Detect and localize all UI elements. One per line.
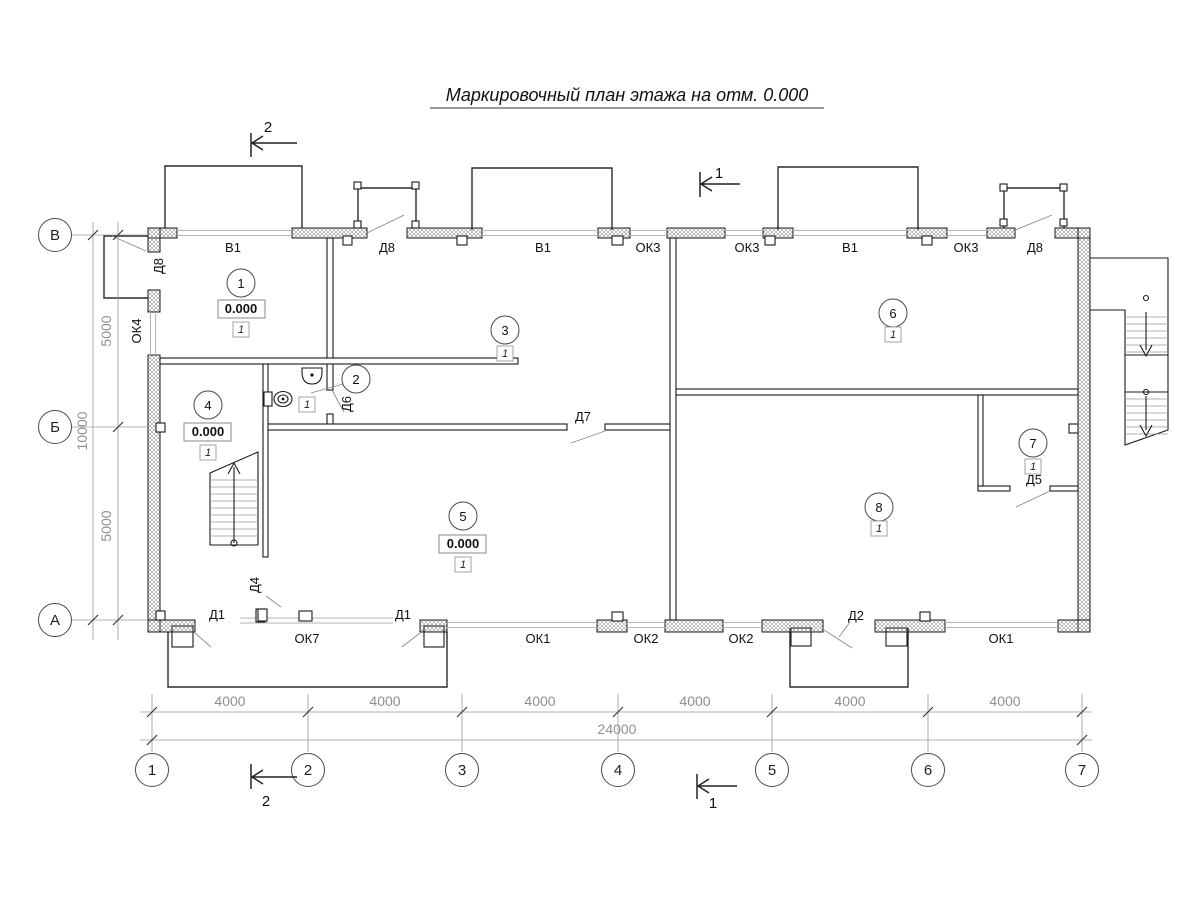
room-3-finish: 1 xyxy=(502,348,508,360)
mark-ok1-2: ОК1 xyxy=(989,631,1014,646)
room-8-number: 8 xyxy=(875,500,882,515)
west-porch xyxy=(104,236,148,298)
dimensions-and-grid: 4000 4000 4000 4000 4000 4000 24000 5000… xyxy=(39,219,1099,787)
dim-4000-6: 4000 xyxy=(989,693,1020,709)
room-6-label: 6 1 xyxy=(879,299,907,342)
mark-ok2-1: ОК2 xyxy=(634,631,659,646)
north-porch-2 xyxy=(472,168,612,230)
section-2-label-bottom: 2 xyxy=(262,793,270,810)
section-mark-2-bottom: 2 xyxy=(251,764,297,810)
axis-circle-2: 2 xyxy=(304,762,312,779)
door-d7-swing xyxy=(571,431,605,443)
room-5-number: 5 xyxy=(459,509,466,524)
dim-4000-1: 4000 xyxy=(214,693,245,709)
room-5-label: 5 0.000 1 xyxy=(439,502,486,572)
room-5-elevation: 0.000 xyxy=(447,536,480,551)
room-7-label: 7 1 xyxy=(1019,429,1047,474)
window-ok2-2 xyxy=(723,623,762,628)
mark-ok4: ОК4 xyxy=(129,319,144,344)
north-porch-d8-left xyxy=(354,182,419,228)
dim-4000-5: 4000 xyxy=(834,693,865,709)
room-6-finish: 1 xyxy=(890,329,896,341)
opening-v1-2 xyxy=(482,231,598,236)
section-mark-1-top: 1 xyxy=(700,165,740,197)
room-8-label: 8 1 xyxy=(865,493,893,536)
toilet xyxy=(264,392,292,407)
dim-5000-top: 5000 xyxy=(98,315,114,346)
external-stair xyxy=(1090,258,1168,445)
section-1-label-bottom: 1 xyxy=(709,795,717,812)
north-porch-3 xyxy=(778,167,918,230)
axis-circle-7: 7 xyxy=(1078,762,1086,779)
opening-v1-1 xyxy=(177,231,292,236)
room-4-label: 4 0.000 1 xyxy=(184,391,231,460)
mark-ok3-2: ОК3 xyxy=(735,240,760,255)
room-1-finish: 1 xyxy=(238,324,244,336)
dim-4000-4: 4000 xyxy=(679,693,710,709)
room-3-label: 3 1 xyxy=(491,316,519,361)
sink xyxy=(302,368,322,384)
axis-circle-v: В xyxy=(50,227,60,244)
axis-circle-3: 3 xyxy=(458,762,466,779)
section-mark-1-bottom: 1 xyxy=(697,774,737,812)
door-d1-right-swing xyxy=(402,633,420,647)
mark-d8-top2: Д8 xyxy=(1027,240,1043,255)
dim-10000: 10000 xyxy=(74,411,90,450)
mark-v1-2: В1 xyxy=(535,240,551,255)
door-d8-top1-swing xyxy=(367,215,404,233)
mark-d4: Д4 xyxy=(247,577,262,593)
north-porch-d8-right xyxy=(1000,184,1067,228)
drawing-title: Маркировочный план этажа на отм. 0.000 xyxy=(446,85,809,105)
stair-down-arrow xyxy=(1140,312,1152,356)
room-6-number: 6 xyxy=(889,306,896,321)
mark-ok2-2: ОК2 xyxy=(729,631,754,646)
mark-d6: Д6 xyxy=(339,396,354,412)
room-4-finish: 1 xyxy=(205,447,211,459)
window-ok1-1 xyxy=(447,623,597,628)
dim-4000-2: 4000 xyxy=(369,693,400,709)
room-3-number: 3 xyxy=(501,323,508,338)
room-1-label: 1 0.000 1 xyxy=(218,269,265,337)
mark-d8-west: Д8 xyxy=(151,258,166,274)
drawing-sheet: Маркировочный план этажа на отм. 0.000 xyxy=(0,0,1200,900)
axis-circle-4: 4 xyxy=(614,762,622,779)
dim-4000-3: 4000 xyxy=(524,693,555,709)
mark-ok7: ОК7 xyxy=(295,631,320,646)
door-d1-left-swing xyxy=(195,633,211,647)
mark-ok1-1: ОК1 xyxy=(526,631,551,646)
room-2-number: 2 xyxy=(352,372,359,387)
door-d8-west-swing xyxy=(112,236,146,251)
interior-walls xyxy=(160,238,1078,620)
window-ok3-2 xyxy=(725,231,763,236)
axis-circles-bottom: 1 2 3 4 5 6 7 xyxy=(136,754,1099,787)
room-2-finish: 1 xyxy=(304,399,310,411)
room-1-elevation: 0.000 xyxy=(225,301,258,316)
mark-d8-top1: Д8 xyxy=(379,240,395,255)
room-4-number: 4 xyxy=(204,398,211,413)
door-d2-leader xyxy=(839,622,850,637)
mark-v1-3: В1 xyxy=(842,240,858,255)
window-ok3-1 xyxy=(630,231,667,236)
axis-circles-left: В Б А xyxy=(39,219,72,637)
room-7-number: 7 xyxy=(1029,436,1036,451)
dim-24000: 24000 xyxy=(598,721,637,737)
mark-ok3-1: ОК3 xyxy=(636,240,661,255)
window-ok2-1 xyxy=(627,623,665,628)
mark-d1-1: Д1 xyxy=(209,607,225,622)
axis-circle-1: 1 xyxy=(148,762,156,779)
door-d4-leaf xyxy=(258,609,267,621)
window-ok1-2 xyxy=(945,623,1058,628)
section-mark-2-top: 2 xyxy=(251,119,297,157)
axis-circle-a: А xyxy=(50,612,60,629)
room-labels: 1 0.000 1 2 1 3 1 4 0.000 1 5 xyxy=(184,269,1047,572)
window-ok3-3 xyxy=(947,231,987,236)
section-1-label-top: 1 xyxy=(715,165,723,182)
section-marks: 2 1 2 1 xyxy=(251,119,740,812)
mark-d5: Д5 xyxy=(1026,472,1042,487)
door-d2-swing xyxy=(824,630,852,648)
mark-v1-1: В1 xyxy=(225,240,241,255)
section-2-label-top: 2 xyxy=(264,119,272,136)
mark-d7: Д7 xyxy=(575,409,591,424)
mark-ok3-3: ОК3 xyxy=(954,240,979,255)
room-5-finish: 1 xyxy=(460,559,466,571)
axis-circle-6: 6 xyxy=(924,762,932,779)
room-1-number: 1 xyxy=(237,276,244,291)
room-8-finish: 1 xyxy=(876,523,882,535)
opening-v1-3 xyxy=(793,231,907,236)
window-ok4 xyxy=(151,312,156,355)
room-4-elevation: 0.000 xyxy=(192,424,225,439)
door-d5-swing xyxy=(1016,491,1050,507)
north-porch-1 xyxy=(165,166,302,228)
door-d4-leader xyxy=(266,596,281,607)
mark-d2: Д2 xyxy=(848,608,864,623)
floor-plan-svg: Маркировочный план этажа на отм. 0.000 xyxy=(0,0,1200,900)
stair-down-arrow xyxy=(1140,396,1152,436)
ok7-mullion xyxy=(299,611,312,621)
door-d8-top2-swing xyxy=(1013,215,1052,231)
dim-5000-bottom: 5000 xyxy=(98,510,114,541)
axis-circle-5: 5 xyxy=(768,762,776,779)
interior-stair xyxy=(210,452,258,546)
axis-circle-b: Б xyxy=(50,419,60,436)
mark-d1-2: Д1 xyxy=(395,607,411,622)
